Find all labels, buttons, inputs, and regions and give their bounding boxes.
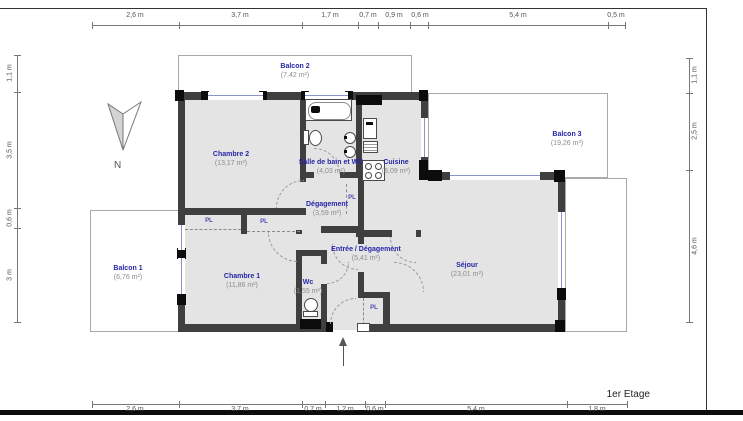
dimension-label: 0,6 m: [7, 209, 14, 227]
dimension-tick: [686, 170, 693, 171]
dimension-tick: [14, 208, 21, 209]
dimension-tick: [179, 22, 180, 29]
room-name: Dégagement: [306, 200, 348, 209]
fridge-detail: [366, 122, 373, 125]
room-name: Wc: [294, 278, 322, 287]
room-label-degagement: Dégagement (3,59 m²): [306, 200, 348, 219]
dimension-tick: [428, 22, 429, 29]
dimension-tick: [92, 22, 93, 29]
dimension-tick: [567, 401, 568, 408]
room-area: (11,86 m²): [224, 281, 260, 290]
dimension-tick: [625, 22, 626, 29]
frame-top-line: [0, 8, 707, 9]
burner: [365, 163, 372, 170]
room-name: Salle de bain et WC: [299, 158, 364, 167]
sink-tap: [344, 136, 347, 139]
balcony-area: [565, 178, 627, 332]
wall-pillar: [419, 90, 428, 101]
dimension-tick: [14, 322, 21, 323]
room-area: (4,03 m²): [299, 167, 364, 176]
dimension-label: 1,7 m: [321, 12, 339, 19]
grill-icon: [363, 141, 378, 153]
toilet-icon: [309, 130, 322, 146]
dimension-label: 2,5 m: [692, 122, 699, 140]
entry-arrow-icon: [339, 337, 349, 367]
dimension-label: 5,4 m: [467, 406, 485, 413]
room-area: (7,42 m²): [280, 71, 309, 80]
room-name: Séjour: [451, 261, 483, 270]
dimension-label: 1,2 m: [336, 406, 354, 413]
wall-pillar: [419, 160, 428, 180]
compass-north-icon: [104, 100, 144, 155]
dimension-line-bottom: [92, 404, 627, 405]
room-name: Cuisine: [382, 158, 410, 167]
wall-pillar: [175, 90, 184, 101]
dimension-label: 3,7 m: [231, 406, 249, 413]
room-label-balcon-3: Balcon 3 (19,26 m²): [551, 130, 583, 149]
dimension-tick: [385, 401, 386, 408]
floor-level-label: 1er Etage: [590, 389, 650, 400]
room-label-cuisine: Cuisine (8,09 m²): [382, 158, 410, 177]
bathtub-tap: [311, 106, 320, 113]
dimension-label: 3,5 m: [7, 141, 14, 159]
room-name: Chambre 1: [224, 272, 260, 281]
room-name: Chambre 2: [213, 150, 249, 159]
entry-arrow-shaft: [343, 345, 344, 366]
dimension-label: 0,5 m: [607, 12, 625, 19]
wall-segment: [321, 226, 358, 233]
bathtub-icon: [305, 99, 352, 121]
room-label-salle-de-bain: Salle de bain et WC (4,03 m²): [299, 158, 364, 177]
closet-label: PL: [348, 195, 356, 201]
dimension-label: 3 m: [7, 269, 14, 281]
dimension-tick: [302, 401, 303, 408]
dimension-tick: [686, 58, 693, 59]
room-label-wc: Wc (1,55 m²): [294, 278, 322, 297]
dimension-label: 0,7 m: [359, 12, 377, 19]
dimension-tick: [686, 322, 693, 323]
room-label-entree: Entrée / Dégagement (5,41 m²): [331, 245, 401, 264]
room-area: (23,01 m²): [451, 270, 483, 279]
dimension-tick: [92, 401, 93, 408]
dimension-label: 4,6 m: [692, 237, 699, 255]
fridge-icon: [363, 118, 377, 139]
compass-north-label: N: [114, 160, 121, 171]
room-area: (5,41 m²): [331, 254, 401, 263]
window: [558, 212, 565, 288]
wall-pillar: [428, 170, 442, 181]
dimension-label: 0,9 m: [385, 12, 403, 19]
toilet-mat: [300, 319, 321, 329]
dimension-tick: [14, 228, 21, 229]
frame-right-line: [706, 8, 707, 411]
room-name: Balcon 3: [551, 130, 583, 139]
dimension-label: 2,6 m: [126, 406, 144, 413]
room-label-balcon-1: Balcon 1 (6,76 m²): [113, 264, 142, 283]
dimension-label: 0,6 m: [366, 406, 384, 413]
room-area: (1,55 m²): [294, 287, 322, 296]
wall-segment: [358, 178, 364, 244]
room-area: (13,17 m²): [213, 159, 249, 168]
window: [421, 118, 428, 157]
dimension-tick: [627, 401, 628, 408]
dimension-tick: [302, 22, 303, 29]
dimension-line-left: [17, 55, 18, 322]
dimension-line-right: [689, 58, 690, 322]
dimension-tick: [358, 22, 359, 29]
room-label-sejour: Séjour (23,01 m²): [451, 261, 483, 280]
room-name: Balcon 2: [280, 62, 309, 71]
dimension-tick: [325, 401, 326, 408]
dimension-label: 0,6 m: [411, 12, 429, 19]
dimension-label: 1,8 m: [588, 406, 606, 413]
wall-pillar: [554, 170, 565, 182]
wall-pillar: [555, 320, 565, 332]
dimension-label: 1,1 m: [692, 66, 699, 84]
floor-plan-canvas: N Balcon 2 (7,42 m²) Chambre 2 (13,17 m²…: [0, 0, 743, 421]
dimension-tick: [14, 92, 21, 93]
dimension-tick: [378, 22, 379, 29]
wall-pillar: [557, 288, 566, 300]
closet-label: PL: [260, 219, 268, 225]
window: [178, 258, 185, 294]
room-name: Entrée / Dégagement: [331, 245, 401, 254]
closet-label: PL: [370, 305, 378, 311]
dimension-label: 5,4 m: [509, 12, 527, 19]
closet-label: PL: [205, 218, 213, 224]
dimension-label: 3,7 m: [231, 12, 249, 19]
window: [450, 172, 540, 180]
wall-segment: [383, 298, 390, 332]
sink-tap: [344, 150, 347, 153]
room-label-chambre-1: Chambre 1 (11,86 m²): [224, 272, 260, 291]
wall-pillar: [177, 294, 186, 305]
closet-front-line: [185, 229, 241, 230]
room-area: (19,26 m²): [551, 139, 583, 148]
toilet-icon: [304, 298, 318, 312]
dimension-label: 0,7 m: [304, 406, 322, 413]
room-label-chambre-2: Chambre 2 (13,17 m²): [213, 150, 249, 169]
room-name: Balcon 1: [113, 264, 142, 273]
window: [208, 92, 263, 100]
room-area: (8,09 m²): [382, 167, 410, 176]
toilet-tank: [303, 311, 318, 317]
dimension-label: 2,6 m: [126, 12, 144, 19]
wall-segment: [416, 230, 421, 237]
dimension-tick: [14, 55, 21, 56]
entry-door-leaf: [357, 323, 370, 332]
dimension-tick: [179, 401, 180, 408]
kitchen-counter: [356, 95, 382, 105]
window: [178, 225, 185, 250]
dimension-tick: [686, 93, 693, 94]
dimension-tick: [410, 22, 411, 29]
room-label-balcon-2: Balcon 2 (7,42 m²): [280, 62, 309, 81]
dimension-tick: [608, 22, 609, 29]
wall-segment: [263, 92, 305, 100]
burner: [365, 172, 372, 179]
room-area: (6,76 m²): [113, 273, 142, 282]
room-area: (3,59 m²): [306, 209, 348, 218]
dimension-label: 1,1 m: [7, 64, 14, 82]
